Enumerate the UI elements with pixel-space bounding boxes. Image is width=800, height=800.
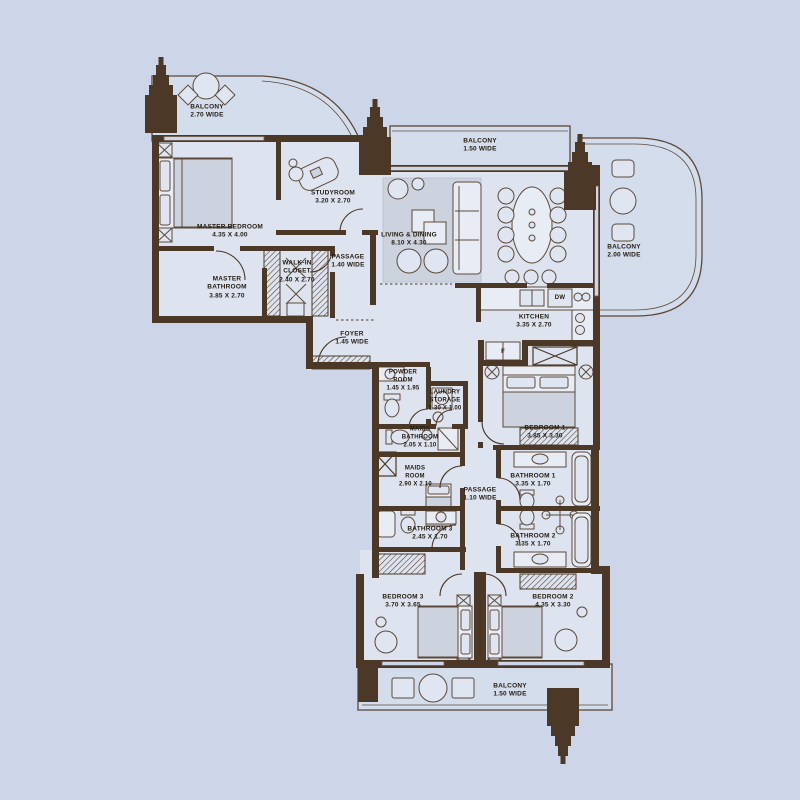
bedroom3-chair bbox=[375, 631, 397, 653]
balcony-r-table bbox=[610, 188, 636, 214]
bar-stool-2 bbox=[524, 270, 538, 284]
bedroom2-stool bbox=[577, 607, 587, 617]
powder-sink bbox=[378, 367, 404, 381]
living-coffee-table-1 bbox=[397, 249, 421, 273]
shaft-box-2 bbox=[533, 347, 577, 365]
balcony-top-left-floor bbox=[152, 76, 359, 141]
balcony-b-table bbox=[419, 674, 447, 702]
living-side-table bbox=[412, 178, 424, 190]
powder-toilet bbox=[384, 394, 400, 417]
stove-burner-1 bbox=[576, 314, 585, 323]
living-ottoman-2 bbox=[424, 222, 446, 244]
bedroom2-wardrobe bbox=[520, 574, 576, 589]
living-coffee-table-2 bbox=[424, 249, 448, 273]
balcony-b-chair-2 bbox=[452, 678, 474, 698]
tower-top-middle bbox=[359, 99, 391, 175]
stove-burner-2 bbox=[576, 326, 585, 335]
bar-stool-3 bbox=[542, 270, 556, 284]
living-accent-chair bbox=[388, 179, 408, 199]
bar-stool-1 bbox=[505, 270, 519, 284]
balcony-r-chair-1 bbox=[612, 160, 634, 177]
tower-top-left bbox=[145, 57, 177, 133]
tower-bottom bbox=[547, 688, 579, 764]
balcony-top-floor bbox=[390, 126, 570, 168]
fridge-label: F bbox=[501, 349, 505, 355]
living-sofa bbox=[453, 182, 481, 274]
dishwasher-label: DW bbox=[555, 295, 565, 301]
closet-wardrobe-right bbox=[312, 250, 328, 316]
bedroom3-stool bbox=[376, 617, 386, 627]
bedroom3-wardrobe bbox=[377, 554, 425, 574]
balcony-r-chair-2 bbox=[612, 224, 634, 241]
bedroom2-chair bbox=[555, 629, 577, 651]
balcony-pillar bbox=[358, 666, 378, 702]
balcony-b-chair-1 bbox=[392, 678, 414, 698]
bedroom1-wardrobe bbox=[520, 428, 578, 445]
floor-plan-page: BALCONY 2.70 WIDE MASTER BEDROOM 4.35 x … bbox=[0, 0, 800, 800]
master-bed bbox=[157, 143, 232, 242]
floor-plan-drawing bbox=[0, 0, 800, 800]
